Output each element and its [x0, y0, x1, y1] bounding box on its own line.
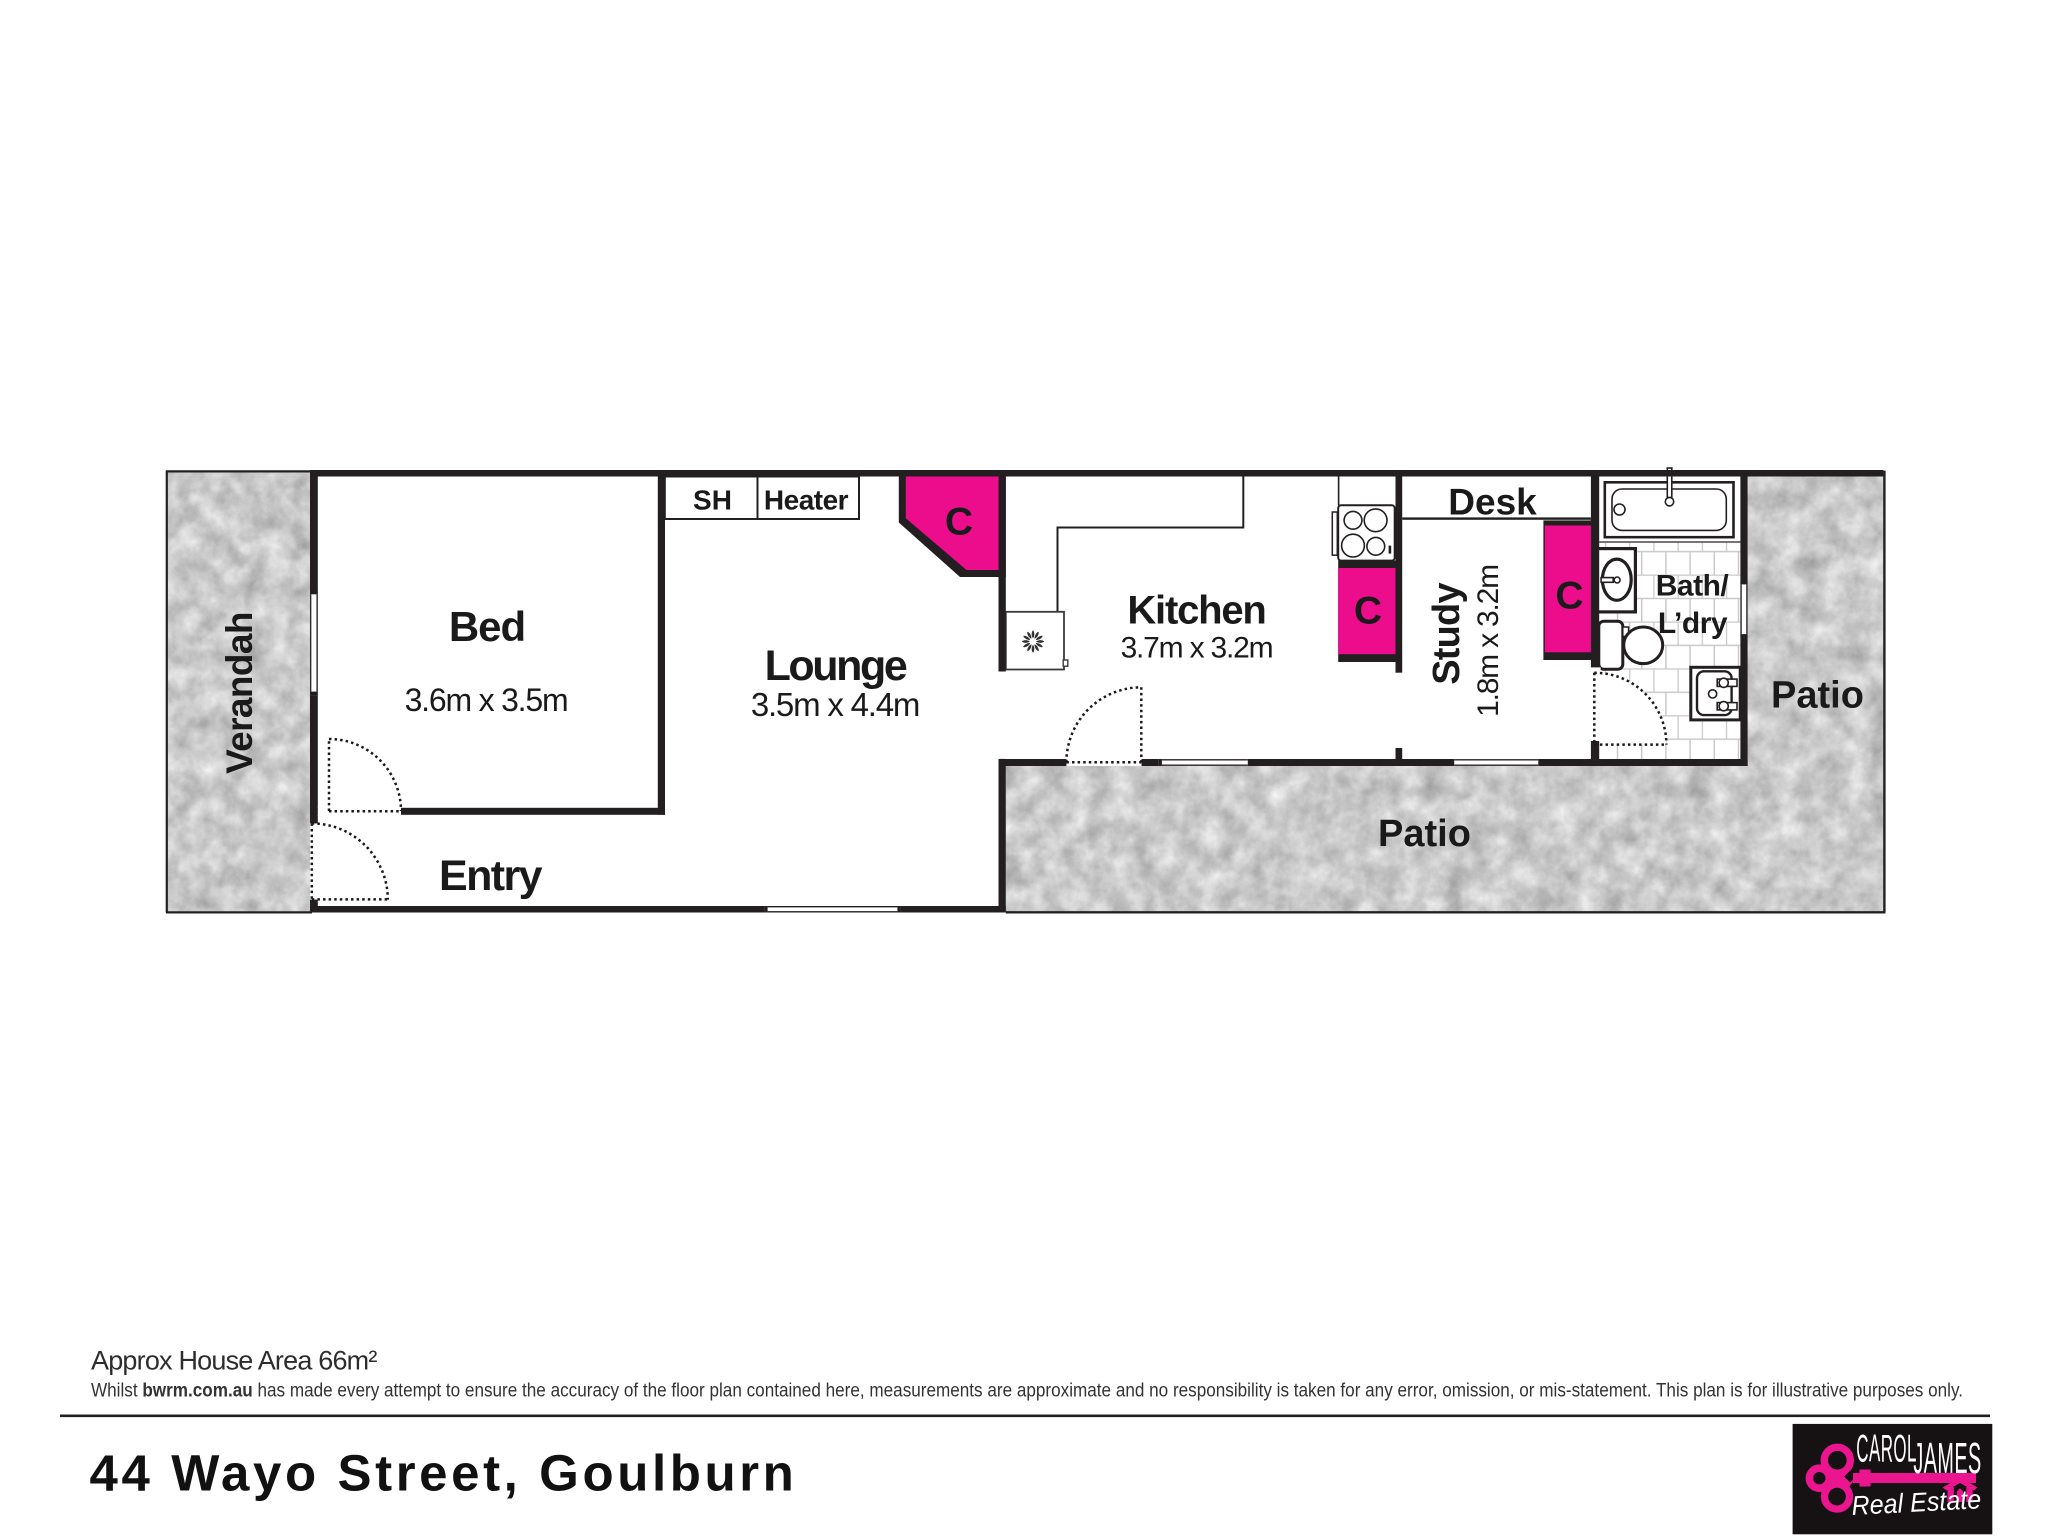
svg-text:3.7m x 3.2m: 3.7m x 3.2m	[1121, 632, 1273, 665]
svg-text:Whilst bwrm.com.au has made ev: Whilst bwrm.com.au has made every attemp…	[91, 1381, 1963, 1402]
svg-text:Bed: Bed	[449, 603, 525, 650]
svg-text:Approx House Area 66m²: Approx House Area 66m²	[91, 1346, 377, 1376]
svg-text:3.5m x 4.4m: 3.5m x 4.4m	[751, 686, 919, 723]
svg-text:Entry: Entry	[439, 852, 543, 900]
svg-text:L’dry: L’dry	[1658, 607, 1728, 640]
svg-text:Study: Study	[1426, 583, 1468, 685]
svg-text:C: C	[1555, 575, 1583, 618]
svg-text:SH: SH	[693, 485, 732, 516]
svg-text:Lounge: Lounge	[765, 642, 907, 690]
svg-text:JAMES: JAMES	[1913, 1435, 1981, 1484]
svg-text:C: C	[945, 501, 973, 544]
svg-text:3.6m x 3.5m: 3.6m x 3.5m	[405, 682, 568, 718]
svg-text:Desk: Desk	[1448, 482, 1537, 523]
svg-text:C: C	[1354, 590, 1382, 633]
svg-text:Verandah: Verandah	[219, 612, 260, 774]
svg-text:CAROL: CAROL	[1856, 1428, 1917, 1471]
svg-text:Heater: Heater	[764, 485, 849, 516]
svg-text:Patio: Patio	[1771, 675, 1864, 717]
svg-text:1.8m x 3.2m: 1.8m x 3.2m	[1472, 565, 1505, 717]
svg-text:44 Wayo Street, Goulburn: 44 Wayo Street, Goulburn	[90, 1445, 798, 1502]
svg-text:Bath/: Bath/	[1656, 570, 1730, 603]
svg-text:Patio: Patio	[1378, 813, 1471, 855]
svg-text:Kitchen: Kitchen	[1127, 589, 1265, 633]
